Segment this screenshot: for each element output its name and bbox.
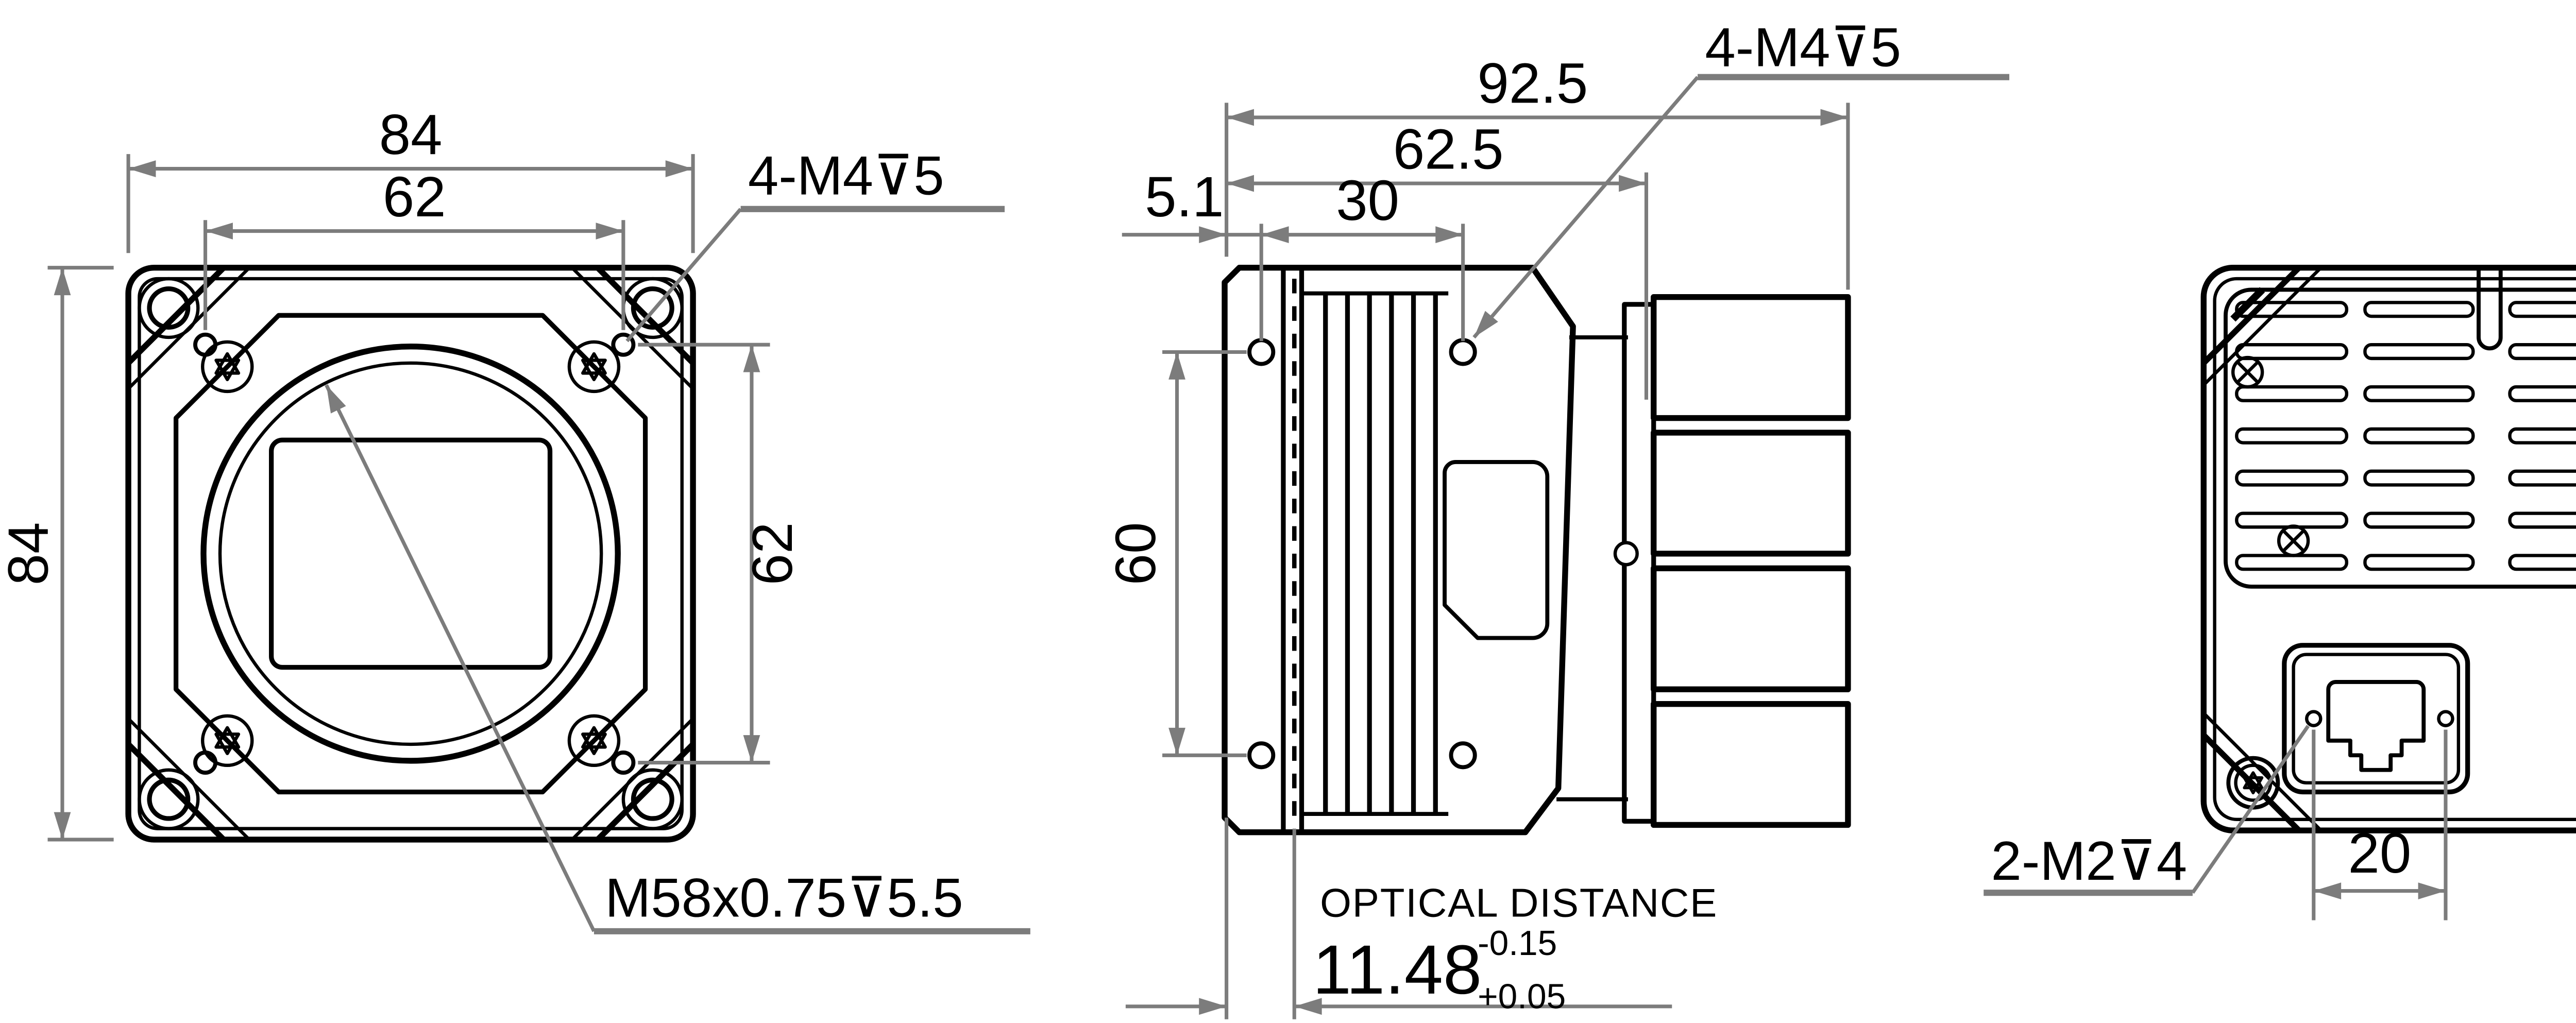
front-dim-height-84: 84 [0,268,114,840]
optical-distance-value: 11.48 [1313,931,1482,1009]
rear-dim-hole-spacing: 20 [2314,729,2446,920]
optical-distance-tol-upper: -0.15 [1478,924,1557,963]
m2-hole-left [2307,712,2320,726]
rear-corner-chamfers [2204,268,2576,830]
rear-thread-callout: 2-M2⊽4 [1984,726,2308,893]
side-rear-heatsink [1556,297,1848,825]
side-m4-hole-top [1451,340,1475,364]
side-m4-hole-bottom [1451,743,1475,767]
optical-distance-callout: OPTICAL DISTANCE 11.48 -0.15 +0.05 [1126,817,1718,1019]
rear-view: 20 2-M2⊽4 [1984,268,2576,920]
front-mount-callout: M58x0.75⊽5.5 [319,381,1030,931]
front-dim-height-inner-label: 62 [741,522,804,586]
technical-drawing-page: 84 62 84 62 [0,0,2576,1023]
optical-distance-label: OPTICAL DISTANCE [1320,880,1718,925]
rear-body-outline [2204,268,2576,830]
side-front-hole-top [1249,340,1273,364]
side-view: 92.5 62.5 5.1 30 [1104,16,2009,1019]
optical-distance-tol-lower: +0.05 [1478,977,1566,1016]
side-front-hole-bottom [1249,743,1273,767]
rear-thread-label: 2-M2⊽4 [1991,830,2187,892]
front-m4-holes [195,335,633,773]
front-thread-label: 4-M4⊽5 [748,144,944,206]
side-dim-flange-label: 5.1 [1145,165,1224,229]
front-dim-width-label: 84 [379,103,443,166]
side-dim-total-label: 92.5 [1478,52,1588,115]
front-dim-width-inner-label: 62 [383,165,446,229]
front-dim-width-62: 62 [206,165,623,330]
side-dim-body-label: 62.5 [1393,118,1504,181]
front-dim-height-label: 84 [0,522,60,586]
side-dim-total: 92.5 [1227,52,1848,289]
side-body-outline [1225,268,1573,832]
front-mount-label: M58x0.75⊽5.5 [605,866,963,928]
rear-dim-hole-spacing-label: 20 [2348,822,2412,885]
side-label-recess [1445,462,1547,638]
camera-dimension-drawing: 84 62 84 62 [0,0,2576,1023]
front-view: 84 62 84 62 [0,103,1030,931]
m2-hole-right [2438,712,2452,726]
side-fins [1301,294,1448,814]
side-dim-hole-spacing-label: 60 [1104,522,1167,586]
side-thread-label: 4-M4⊽5 [1705,16,1901,78]
front-dim-height-62: 62 [638,345,804,762]
side-dim-hole-offset-label: 30 [1336,169,1399,232]
